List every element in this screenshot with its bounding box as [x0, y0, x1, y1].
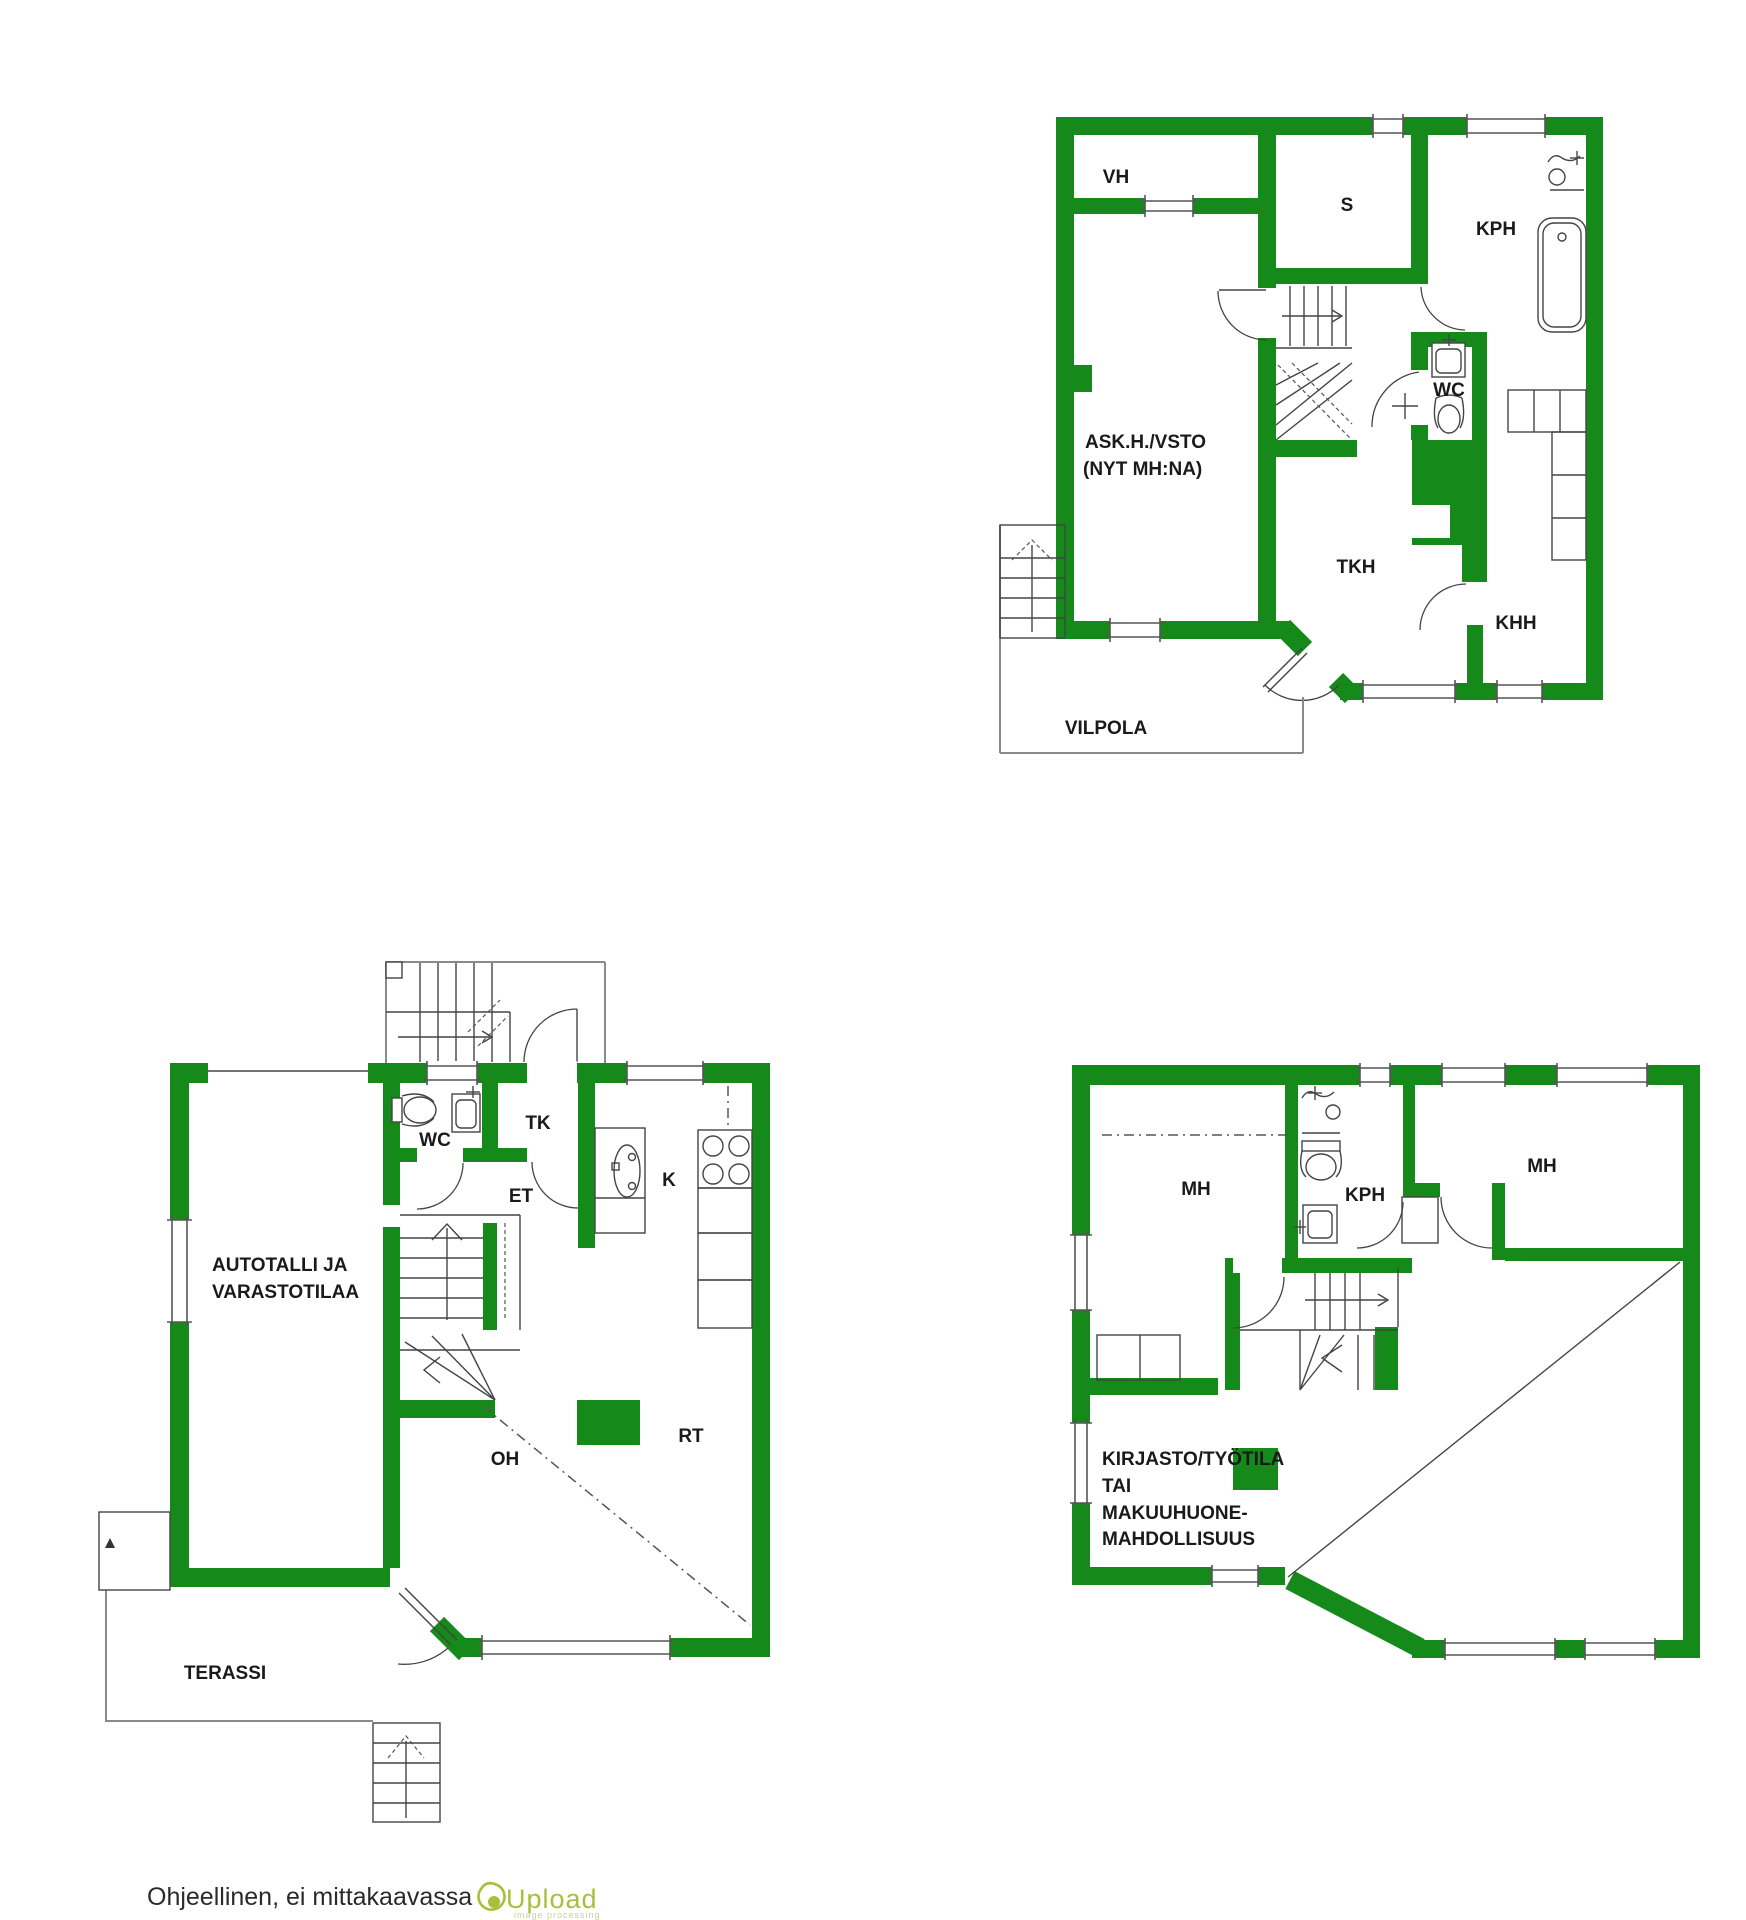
- room-label-k: K: [662, 1170, 676, 1191]
- footer-note: Ohjeellinen, ei mittakaavassa: [147, 1883, 472, 1911]
- room-label-kph: KPH: [1476, 219, 1516, 240]
- room-label-library-4: MAHDOLLISUUS: [1102, 1529, 1255, 1550]
- door-arc: [417, 1163, 463, 1209]
- window-icon: [1208, 1565, 1262, 1587]
- window-icon: [1070, 1231, 1092, 1314]
- door-opening: [383, 1205, 400, 1227]
- door-opening: [1256, 288, 1278, 338]
- ground-walls: [170, 1063, 770, 1657]
- room-label-rt: RT: [678, 1426, 704, 1447]
- room-label-tkh: TKH: [1336, 557, 1375, 578]
- door-arc: [1357, 1202, 1403, 1248]
- window-icon: [1438, 1063, 1509, 1087]
- closet-icon: [1508, 390, 1586, 560]
- loft-stairs-icon: [1240, 1268, 1398, 1390]
- door-opening: [527, 1061, 577, 1085]
- ceiling-slope-line: [1288, 1262, 1680, 1577]
- shower-icon: [1302, 1086, 1340, 1133]
- sink-icon: [452, 1086, 480, 1132]
- upper-stairs-icon: [1276, 286, 1352, 440]
- window-icon: [1070, 1419, 1092, 1507]
- room-label-askh-2: (NYT MH:NA): [1083, 459, 1202, 480]
- room-label-wc: WC: [419, 1130, 451, 1151]
- room-label-library-1: KIRJASTO/TYÖTILA: [1102, 1449, 1285, 1470]
- garage-opening: [208, 1061, 368, 1085]
- counter-icon: [698, 1280, 752, 1328]
- counter-icon: [698, 1188, 752, 1233]
- upload-logo: Upload image processing: [479, 1883, 601, 1920]
- footer: Ohjeellinen, ei mittakaavassa Upload ima…: [147, 1883, 601, 1920]
- window-icon: [1369, 114, 1407, 138]
- droplet-icon: [479, 1883, 505, 1910]
- floor-plan-canvas: VH S KPH WC ASK.H./VSTO (NYT MH:NA) TKH …: [0, 0, 1746, 1920]
- room-label-vilpola: VILPOLA: [1065, 718, 1148, 739]
- door-arc: [532, 1162, 578, 1208]
- sink-icon: [1294, 1205, 1337, 1243]
- window-icon: [1463, 114, 1549, 138]
- shower-icon: [1548, 151, 1584, 190]
- door-arc: [1421, 287, 1465, 330]
- door-opening: [1411, 370, 1428, 425]
- ground-floor-plan: WC TK ET K AUTOTALLI JA VARASTOTILAA OH …: [99, 962, 770, 1822]
- room-label-wc: WC: [1433, 380, 1465, 401]
- room-label-s: S: [1341, 195, 1354, 216]
- toilet-icon: [392, 1094, 436, 1126]
- terrace-stairs-icon: [373, 1723, 440, 1822]
- room-label-library-3: MAKUUHUONE-: [1102, 1503, 1248, 1524]
- window-icon: [167, 1216, 192, 1326]
- door-arc: [524, 1009, 577, 1062]
- fireplace-icon: [577, 1400, 640, 1445]
- toilet-icon: [1301, 1141, 1342, 1180]
- door-arc: [1441, 1197, 1492, 1248]
- window-icon: [1106, 618, 1164, 642]
- room-label-tk: TK: [525, 1113, 551, 1134]
- window-icon: [623, 1061, 707, 1085]
- door-arc: [398, 1648, 448, 1664]
- room-label-garage-2: VARASTOTILAA: [212, 1282, 359, 1303]
- upper-floor-plan: VH S KPH WC ASK.H./VSTO (NYT MH:NA) TKH …: [1000, 114, 1603, 753]
- room-label-garage-1: AUTOTALLI JA: [212, 1255, 348, 1276]
- door-arc: [1233, 1277, 1284, 1328]
- room-label-vh: VH: [1103, 167, 1129, 188]
- door-opening: [1440, 1183, 1492, 1197]
- window-icon: [478, 1635, 674, 1660]
- counter-icon: [698, 1233, 752, 1280]
- room-label-mh-right: MH: [1527, 1156, 1557, 1177]
- room-label-library-2: TAI: [1102, 1476, 1131, 1497]
- window-icon: [1581, 1638, 1659, 1660]
- door-arc: [1420, 584, 1466, 630]
- room-label-askh-1: ASK.H./VSTO: [1085, 432, 1206, 453]
- window-icon: [1356, 1063, 1394, 1087]
- porch-stairs-icon: [1000, 525, 1065, 638]
- loft-floor-plan: MH KPH MH KIRJASTO/TYÖTILA TAI MAKUUHUON…: [1070, 1063, 1700, 1660]
- window-icon: [1493, 680, 1546, 703]
- ground-stairs-icon: [400, 1215, 520, 1400]
- room-label-kph: KPH: [1345, 1185, 1385, 1206]
- window-icon: [1553, 1063, 1651, 1087]
- entry-marker-icon: [105, 1538, 115, 1548]
- door-opening: [1233, 1258, 1282, 1273]
- kitchen-sink-icon: [595, 1128, 645, 1233]
- room-label-terassi: TERASSI: [184, 1663, 266, 1684]
- entry-stairs-outline: [386, 962, 605, 1063]
- logo-subtext: image processing: [514, 1910, 601, 1920]
- door-opening: [1141, 195, 1197, 217]
- room-label-oh: OH: [491, 1449, 520, 1470]
- stove-icon: [698, 1130, 752, 1188]
- bathtub-icon: [1538, 218, 1586, 332]
- window-icon: [1441, 1638, 1559, 1660]
- room-label-mh-left: MH: [1181, 1179, 1211, 1200]
- room-label-et: ET: [509, 1186, 534, 1207]
- loft-walls: [1072, 1065, 1700, 1658]
- room-label-khh: KHH: [1495, 613, 1536, 634]
- window-icon: [1359, 680, 1459, 703]
- floorplan-page: VH S KPH WC ASK.H./VSTO (NYT MH:NA) TKH …: [0, 0, 1746, 1920]
- door-opening: [1305, 649, 1336, 680]
- window-icon: [423, 1061, 481, 1085]
